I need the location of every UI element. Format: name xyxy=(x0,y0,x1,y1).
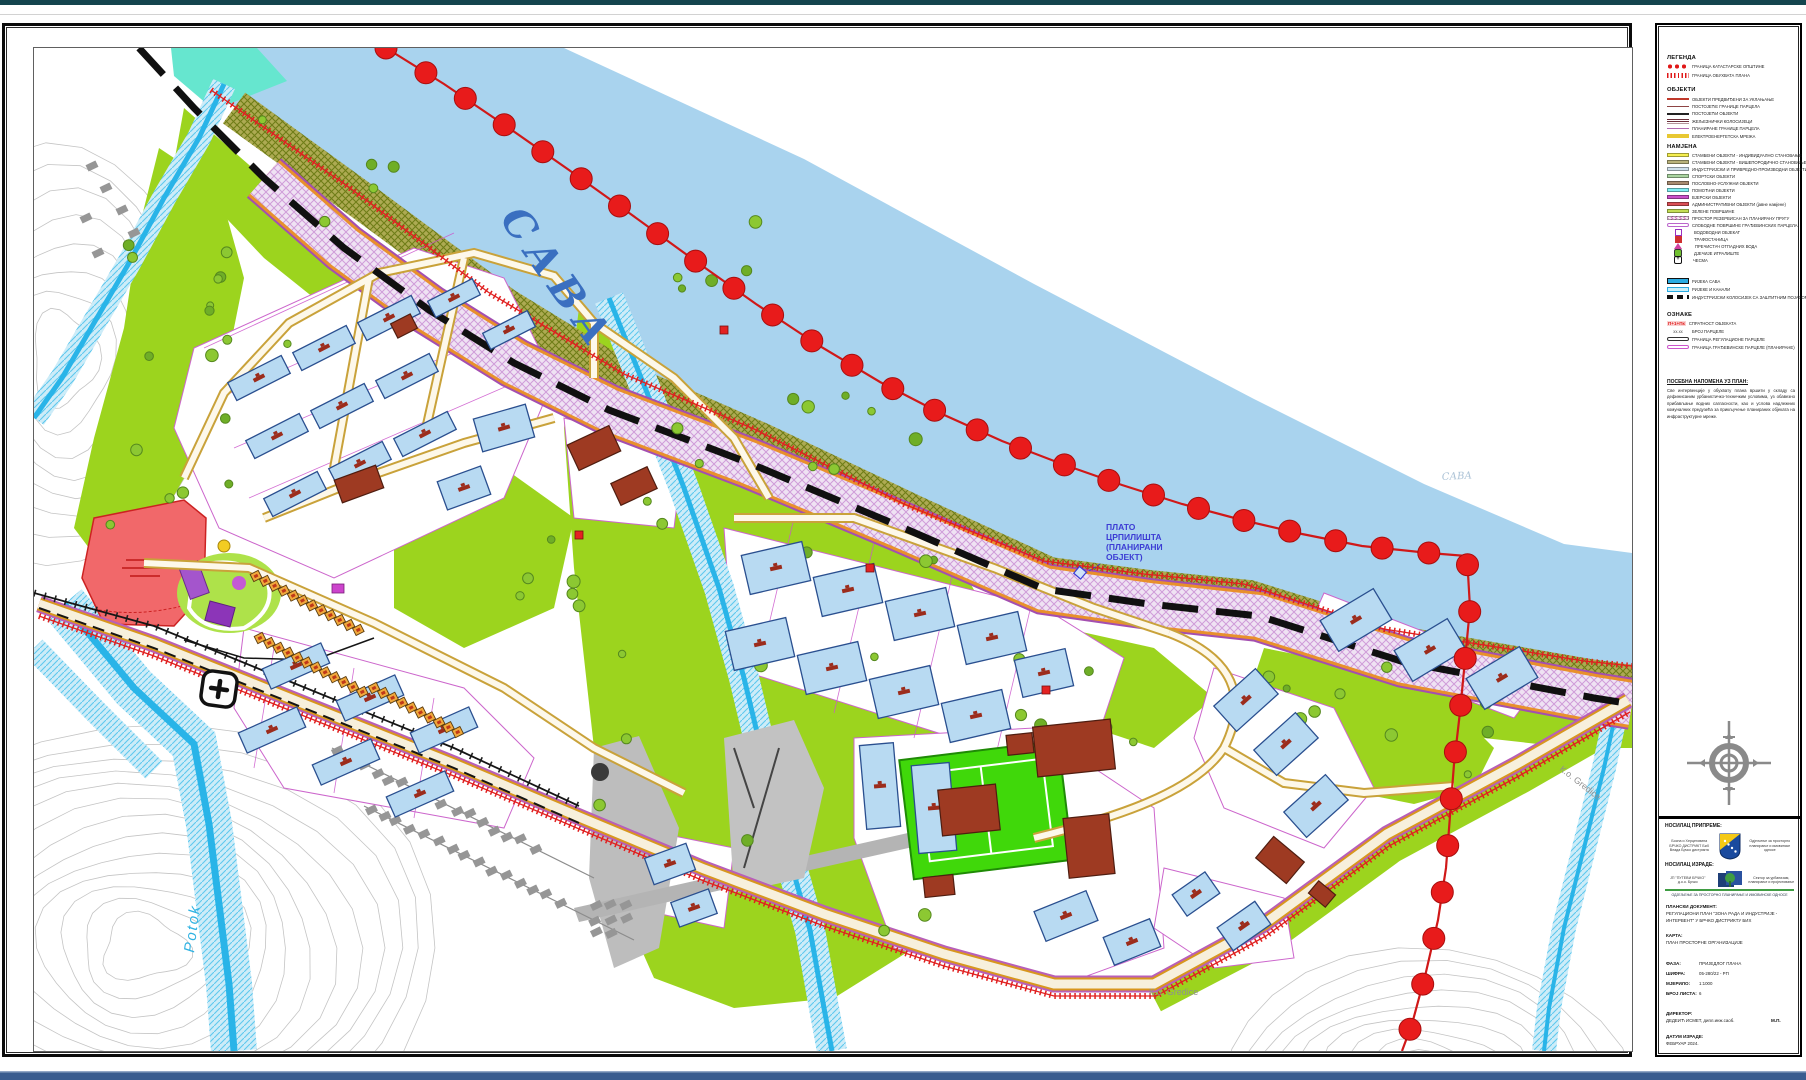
map-label: КАРТА: xyxy=(1666,933,1683,938)
map-value: ПЛАН ПРОСТОРНЕ ОРГАНИЗАЦИЈЕ xyxy=(1666,940,1796,947)
legend-item: АДМИНИСТРАТИВНИ ОБЈЕКТИ (јавне намјене) xyxy=(1667,201,1786,207)
legend-item-label: СТАМБЕНИ ОБЈЕКТИ - ИНДИВИДУАЛНО СТАНОВАЊ… xyxy=(1692,153,1802,158)
izr-block: ЈП "ПУТЕВИ БРЧКО" д.о.о. Брчко Сектор за… xyxy=(1664,870,1795,890)
sheet-value: 6 xyxy=(1699,991,1806,998)
river-ghost-label: САВА xyxy=(1442,470,1473,483)
doc-label: ПЛАНСКИ ДОКУМЕНТ: xyxy=(1666,904,1717,909)
legend-item: xx.xxБРОЈ ПАРЦЕЛЕ xyxy=(1667,328,1724,334)
legend-item-label: ИНДУСТРИЈСКИ И ПРИВРЕДНО-ПРОИЗВОДНИ ОБЈЕ… xyxy=(1692,167,1806,172)
izr-caption: ОДЈЕЉЕЊЕ ЗА ПРОСТОРНО ПЛАНИРАЊЕ И ИМОВИН… xyxy=(1665,893,1794,897)
legend-item-label: АДМИНИСТРАТИВНИ ОБЈЕКТИ (јавне намјене) xyxy=(1692,202,1786,207)
svg-text:ЦРПИЛИШТА: ЦРПИЛИШТА xyxy=(1106,532,1162,542)
page: { "map": { "labels": { "river": "САВА", … xyxy=(0,0,1806,1080)
prep-block: Босна и Херцеговина БРЧКО ДИСТРИКТ БиХ В… xyxy=(1664,832,1795,860)
legend-objects-title: ОБЈЕКТИ xyxy=(1667,87,1696,93)
legend-item-label: ГРАНИЦА ОБУХВАТА ПЛАНА xyxy=(1692,73,1750,78)
phase-label: ФАЗА: xyxy=(1666,961,1681,966)
legend-item-label: ИНДУСТРИЈСКИ КОЛОСИЈЕК СА ЗАШТИТНИМ ПОЈА… xyxy=(1692,295,1806,300)
legend-item: СТАМБЕНИ ОБЈЕКТИ - ИНДИВИДУАЛНО СТАНОВАЊ… xyxy=(1667,152,1802,158)
green-rule xyxy=(1665,889,1794,891)
legend-item-label: ГРАНИЦА ГРАЂЕВИНСКЕ ПАРЦЕЛЕ (ПЛАНИРАНЕ) xyxy=(1692,345,1795,350)
legend-item-label: СПРАТНОСТ ОБЈЕКАТА xyxy=(1689,321,1736,326)
legend-item-label: ДЈЕЧИЈЕ ИГРАЛИШТЕ xyxy=(1694,251,1739,256)
legend-item: ЗЕЛЕНЕ ПОВРШИНЕ xyxy=(1667,208,1734,214)
izr-title: НОСИЛАЦ ИЗРАДЕ: xyxy=(1665,862,1714,868)
legend-item: ЕЛЕКТРОЕНЕРГЕТСКА МРЕЖА xyxy=(1667,133,1755,139)
legend-item-label: СЛОБОДНЕ ПОВРШИНЕ ГРАЂЕВИНСКИХ ПАРЦЕЛА xyxy=(1692,223,1798,228)
window-top-bar xyxy=(0,0,1806,5)
note-text: Све интервенције у обухвату плана вршити… xyxy=(1667,388,1795,420)
legend-item-label: СТАМБЕНИ ОБЈЕКТИ - ВИШЕПОРОДИЧНО СТАНОВА… xyxy=(1692,160,1806,165)
legend-item-label: ЗЕЛЕНЕ ПОВРШИНЕ xyxy=(1692,209,1734,214)
director-value: ДЕДЕИЋ ИСМЕТ, дипл.инж.саоб. xyxy=(1666,1018,1766,1025)
doc-value: РЕГУЛАЦИОНИ ПЛАН "ЗОНА РАДА И ИНДУСТРИЈЕ… xyxy=(1666,911,1796,924)
legend-namjena-title: НАМЈЕНА xyxy=(1667,144,1697,150)
legend-item: ВЈЕРСКИ ОБЈЕКТИ xyxy=(1667,194,1731,200)
izr-left-text: ЈП "ПУТЕВИ БРЧКО" д.о.о. Брчко xyxy=(1664,876,1712,885)
legend-item-label: РИЈЕКА САВА xyxy=(1692,279,1720,284)
legend-item-label: РИЈЕКЕ И КАНАЛИ xyxy=(1692,287,1730,292)
svg-text:ОБЈЕКТ): ОБЈЕКТ) xyxy=(1106,552,1143,562)
legend-item: ГРАНИЦА КАТАСТАРСКЕ ОПШТИНЕ xyxy=(1667,63,1764,69)
legend-item-label: ПОМОЋНИ ОБЈЕКТИ xyxy=(1692,188,1735,193)
prep-left-text: Босна и Херцеговина БРЧКО ДИСТРИКТ БиХ В… xyxy=(1664,839,1715,852)
legend-item: ГРАНИЦА РЕГУЛАЦИОНЕ ПАРЦЕЛЕ xyxy=(1667,336,1765,342)
legend-item: ЖЕЉЕЗНИЧКИ КОЛОСИЈЕЦИ xyxy=(1667,118,1752,124)
scale-label: МЈЕРИЛО: xyxy=(1666,981,1690,986)
bih-coat-of-arms xyxy=(1718,832,1742,860)
map-window: САВА xyxy=(33,47,1633,1052)
prep-right-text: Одјељење за просторно планирање и имовин… xyxy=(1745,839,1796,852)
ko-gredice-label-2: К.о. Gredice xyxy=(1149,987,1198,997)
legend-item-label: ПЛАНИРАНЕ ГРАНИЦЕ ПАРЦЕЛА xyxy=(1692,126,1760,131)
legend-item-label: ВЈЕРСКИ ОБЈЕКТИ xyxy=(1692,195,1731,200)
sheet-label: БРОЈ ЛИСТА: xyxy=(1666,991,1697,996)
legend-item: ТРАФОСТАНИЦА xyxy=(1667,236,1728,242)
svg-text:ПЛАТО: ПЛАТО xyxy=(1106,522,1136,532)
phase-value: ПРИЈЕДЛОГ ПЛАНА xyxy=(1699,961,1806,968)
legend-item: ИНДУСТРИЈСКИ И ПРИВРЕДНО-ПРОИЗВОДНИ ОБЈЕ… xyxy=(1667,166,1806,172)
legend-item: СТАМБЕНИ ОБЈЕКТИ - ВИШЕПОРОДИЧНО СТАНОВА… xyxy=(1667,159,1806,165)
legend-item-label: СПОРТСКИ ОБЈЕКТИ xyxy=(1692,174,1735,179)
legend-item-label: ПОСТОЈЕЋИ ОБЈЕКТИ xyxy=(1692,111,1738,116)
director-label: ДИРЕКТОР: xyxy=(1666,1011,1692,1016)
legend-item: ПЛАНИРАНЕ ГРАНИЦЕ ПАРЦЕЛА xyxy=(1667,126,1760,132)
map-sheet-inner-frame: САВА xyxy=(6,27,1628,1053)
svg-text:(ПЛАНИРАНИ: (ПЛАНИРАНИ xyxy=(1106,542,1163,552)
legend-item: ПОМОЋНИ ОБЈЕКТИ xyxy=(1667,187,1735,193)
legend-item-label: ПОСТОЈЕЋЕ ГРАНИЦЕ ПАРЦЕЛА xyxy=(1692,104,1760,109)
code-value: 05-280/22 - РП xyxy=(1699,971,1806,978)
legend-item-label: ЕЛЕКТРОЕНЕРГЕТСКА МРЕЖА xyxy=(1692,134,1755,139)
legend-panel: ЛЕГЕНДА ГРАНИЦА КАТАСТАРСКЕ ОПШТИНЕГРАНИ… xyxy=(1655,23,1802,1057)
legend-item-label: ПРЕЧИСТАЧ ОТПАДНИХ ВОДА xyxy=(1695,244,1757,249)
legend-item-label: ЧЕСМА xyxy=(1693,258,1708,263)
code-label: ШИФРА: xyxy=(1666,971,1685,976)
legend-panel-inner: ЛЕГЕНДА ГРАНИЦА КАТАСТАРСКЕ ОПШТИНЕГРАНИ… xyxy=(1658,26,1799,1054)
legend-item: РИЈЕКЕ И КАНАЛИ xyxy=(1667,286,1730,292)
date-value: ФЕБРУАР 2024. xyxy=(1666,1041,1796,1048)
legend-item: ПРОСТОР РЕЗЕРВИСАН ЗА ПЛАНИРАНУ ПРУГУ xyxy=(1667,215,1789,221)
legend-item-label: ТРАФОСТАНИЦА xyxy=(1694,237,1728,242)
compass-rose xyxy=(1684,718,1774,808)
note-title: ПОСЕБНА НАПОМЕНА УЗ ПЛАН: xyxy=(1667,379,1797,385)
legend-item-label: ГРАНИЦА КАТАСТАРСКЕ ОПШТИНЕ xyxy=(1692,64,1764,69)
top-hairline xyxy=(0,14,1806,15)
legend-item: ПОСТОЈЕЋИ ОБЈЕКТИ xyxy=(1667,111,1738,117)
legend-item: ВОДОВОДНИ ОБЈЕКАТ xyxy=(1667,229,1740,235)
legend-item: СЛОБОДНЕ ПОВРШИНЕ ГРАЂЕВИНСКИХ ПАРЦЕЛА xyxy=(1667,222,1798,228)
izr-logo xyxy=(1715,870,1745,890)
stamp-mark: М.П. xyxy=(1771,1018,1781,1023)
cesma-plus-symbol xyxy=(200,670,238,708)
legend-item-label: ОБЈЕКТИ ПРЕДВИЂЕНИ ЗА УКЛАЊАЊЕ xyxy=(1692,97,1774,102)
legend-item: П+1+ПкСПРАТНОСТ ОБЈЕКАТА xyxy=(1667,320,1736,326)
legend-oznake-title: ОЗНАКЕ xyxy=(1667,312,1692,318)
legend-item-label: БРОЈ ПАРЦЕЛЕ xyxy=(1692,329,1724,334)
legend-item-label: ПОСЛОВНО-УСЛУЖНИ ОБЈЕКТИ xyxy=(1692,181,1759,186)
legend-item-label: ГРАНИЦА РЕГУЛАЦИОНЕ ПАРЦЕЛЕ xyxy=(1692,337,1765,342)
legend-item: СПОРТСКИ ОБЈЕКТИ xyxy=(1667,173,1735,179)
panel-divider xyxy=(1659,816,1800,819)
date-label: ДАТУМ ИЗРАДЕ: xyxy=(1666,1034,1703,1039)
legend-item: ПОСТОЈЕЋЕ ГРАНИЦЕ ПАРЦЕЛА xyxy=(1667,103,1760,109)
legend-title: ЛЕГЕНДА xyxy=(1667,55,1696,61)
legend-item: ПОСЛОВНО-УСЛУЖНИ ОБЈЕКТИ xyxy=(1667,180,1759,186)
legend-item: РИЈЕКА САВА xyxy=(1667,278,1720,284)
legend-item-label: ПРОСТОР РЕЗЕРВИСАН ЗА ПЛАНИРАНУ ПРУГУ xyxy=(1692,216,1789,221)
scale-value: 1:1000 xyxy=(1699,981,1806,988)
prep-title: НОСИЛАЦ ПРИПРЕМЕ: xyxy=(1665,823,1722,829)
legend-item-label: ЖЕЉЕЗНИЧКИ КОЛОСИЈЕЦИ xyxy=(1692,119,1752,124)
map-sheet-frame: САВА xyxy=(2,23,1632,1057)
legend-item: +ЧЕСМА xyxy=(1667,257,1708,263)
legend-item-label: ВОДОВОДНИ ОБЈЕКАТ xyxy=(1694,230,1740,235)
legend-item: ОБЈЕКТИ ПРЕДВИЂЕНИ ЗА УКЛАЊАЊЕ xyxy=(1667,96,1774,102)
legend-item: ИНДУСТРИЈСКИ КОЛОСИЈЕК СА ЗАШТИТНИМ ПОЈА… xyxy=(1667,294,1806,300)
plan-map-canvas: САВА xyxy=(34,48,1632,1051)
izr-right-text: Сектор за урбанизам, планирање и пројект… xyxy=(1748,876,1796,885)
window-bottom-bar xyxy=(0,1071,1806,1080)
legend-item: ГРАНИЦА ОБУХВАТА ПЛАНА xyxy=(1667,72,1750,78)
legend-item: ГРАНИЦА ГРАЂЕВИНСКЕ ПАРЦЕЛЕ (ПЛАНИРАНЕ) xyxy=(1667,344,1795,350)
